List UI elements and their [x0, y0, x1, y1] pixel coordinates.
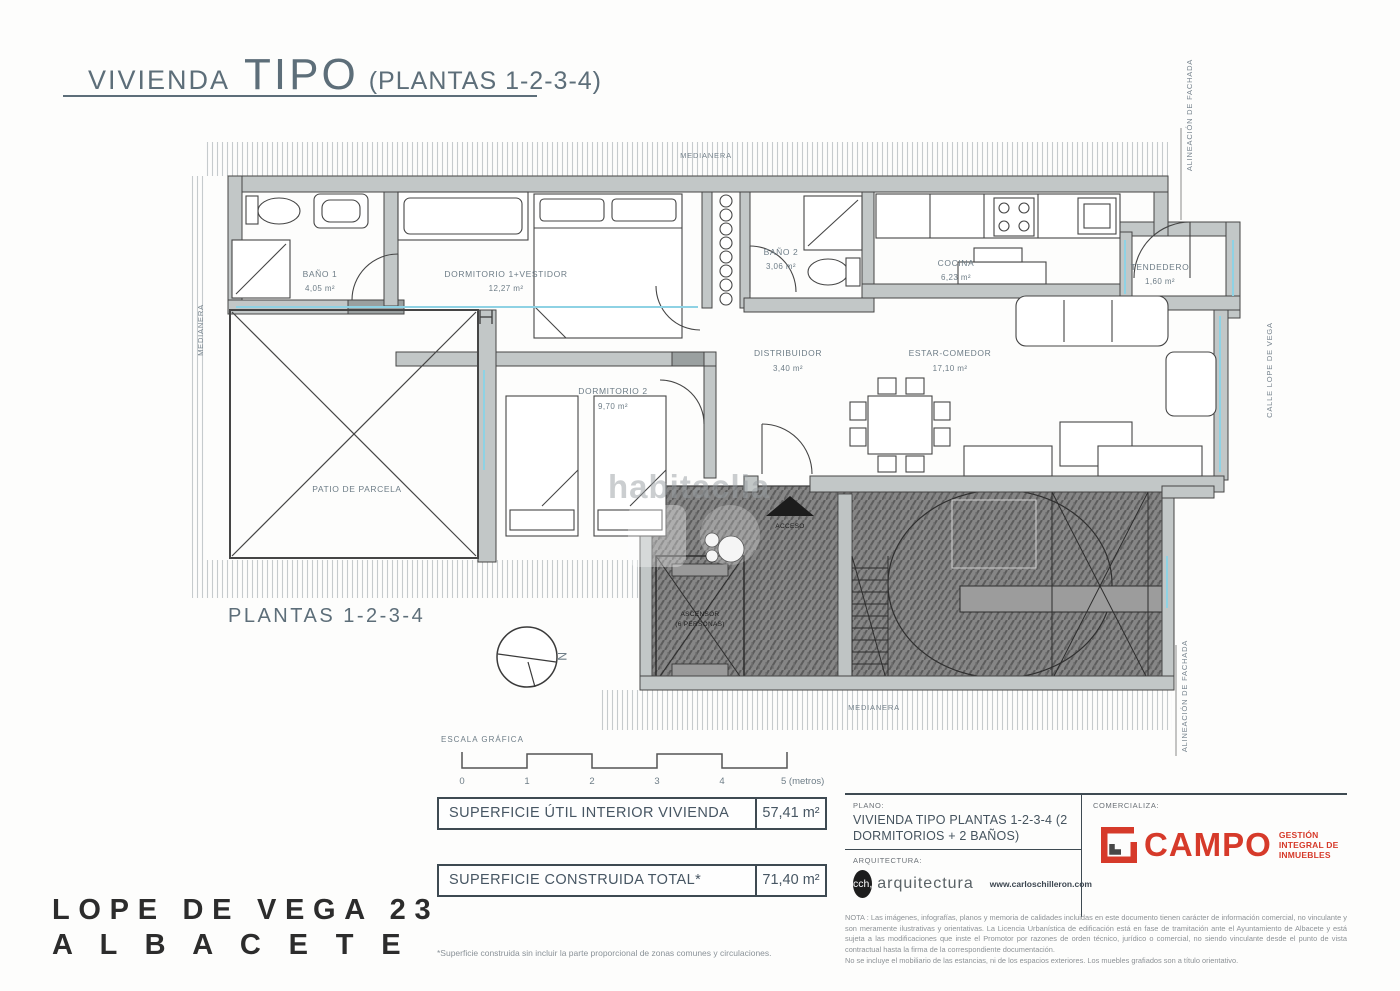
room-area-cocina: 6,23 m²: [941, 273, 971, 282]
scale-tick-3: 3: [654, 776, 659, 787]
arquitectura-label: ARQUITECTURA:: [845, 850, 1081, 865]
medianera-bottom-label: MEDIANERA: [848, 703, 900, 712]
scale-tick-2: 2: [589, 776, 594, 787]
nota-paragraph-1: NOTA : Las imágenes, infografías, planos…: [845, 913, 1347, 956]
calle-lope-de-vega-label: CALLE LOPE DE VEGA: [1265, 322, 1274, 418]
title-block-left: PLANO: VIVIENDA TIPO PLANTAS 1-2-3-4 (2 …: [845, 795, 1081, 911]
campo-tagline-2: INTEGRAL DE: [1279, 840, 1339, 850]
campo-tagline-1: GESTIÓN: [1279, 830, 1339, 840]
arquitectura-row: cch, arquitectura www.carloschilleron.co…: [845, 865, 1081, 898]
surface-construida-table: SUPERFICIE CONSTRUIDA TOTAL* 71,40 m²: [437, 864, 827, 897]
room-label-bano2: BAÑO 2: [764, 247, 799, 257]
comercializa-label: COMERCIALIZA:: [1081, 795, 1347, 810]
acceso-label: ACCESO: [775, 523, 804, 530]
room-label-bano1: BAÑO 1: [303, 269, 338, 279]
plano-section: PLANO: VIVIENDA TIPO PLANTAS 1-2-3-4 (2 …: [845, 795, 1081, 850]
medianera-left-label: MEDIANERA: [196, 304, 205, 356]
svg-text:N: N: [555, 652, 569, 661]
scale-bar-title: ESCALA GRÁFICA: [441, 735, 524, 744]
room-label-distribuidor: DISTRIBUIDOR: [754, 348, 822, 358]
surface-util-value: 57,41 m²: [755, 799, 825, 828]
room-area-bano2: 3,06 m²: [766, 262, 796, 271]
scale-tick-1: 1: [524, 776, 529, 787]
campo-brand-name: CAMPO: [1144, 826, 1272, 864]
project-address: LOPE DE VEGA 23 A L B A C E T E: [52, 894, 439, 962]
address-line2: A L B A C E T E: [52, 929, 439, 962]
campo-logo-icon: [1101, 827, 1137, 863]
patio-outline: [230, 310, 478, 558]
title-block: PLANO: VIVIENDA TIPO PLANTAS 1-2-3-4 (2 …: [845, 793, 1347, 977]
room-label-dormitorio1: DORMITORIO 1+VESTIDOR: [444, 269, 567, 279]
room-label-cocina: COCINA: [938, 258, 975, 268]
nota-paragraph-2: No se incluye el mobiliario de las estan…: [845, 956, 1347, 967]
room-area-dormitorio2: 9,70 m²: [598, 402, 628, 411]
surface-construida-label: SUPERFICIE CONSTRUIDA TOTAL*: [439, 866, 755, 895]
scale-bar: ESCALA GRÁFICA 0 1 2 3 4 5 (metros): [441, 735, 824, 787]
room-area-estar: 17,10 m²: [933, 364, 968, 373]
floor-label: PLANTAS 1-2-3-4: [228, 605, 425, 628]
room-area-dormitorio1: 12,27 m²: [489, 284, 524, 293]
room-label-tendedero: TENDEDERO: [1131, 262, 1190, 272]
arquitectura-website: www.carloschilleron.com: [990, 879, 1092, 889]
watermark-blob: [628, 505, 686, 567]
room-area-bano1: 4,05 m²: [305, 284, 335, 293]
arquitectura-name: arquitectura: [877, 875, 974, 893]
plano-label: PLANO:: [845, 795, 1081, 810]
north-arrow-icon: N: [497, 627, 569, 687]
surface-util-table: SUPERFICIE ÚTIL INTERIOR VIVIENDA 57,41 …: [437, 797, 827, 830]
watermark-text: habitaclia: [608, 468, 770, 506]
campo-tagline: GESTIÓN INTEGRAL DE INMUEBLES: [1279, 830, 1339, 861]
campo-tagline-3: INMUEBLES: [1279, 850, 1339, 860]
plano-value: VIVIENDA TIPO PLANTAS 1-2-3-4 (2 DORMITO…: [845, 810, 1081, 844]
watermark-blob: [700, 505, 760, 565]
nota-section: NOTA : Las imágenes, infografías, planos…: [845, 913, 1347, 967]
alineacion-fachada-bottom-label: ALINEACIÓN DE FACHADA: [1180, 640, 1189, 752]
scale-tick-0: 0: [459, 776, 464, 787]
scale-tick-4: 4: [719, 776, 724, 787]
title-block-right: COMERCIALIZA: CAMPO GESTIÓN INTEGRAL DE …: [1081, 795, 1347, 911]
alineacion-fachada-top-label: ALINEACIÓN DE FACHADA: [1185, 59, 1194, 171]
surface-construida-value: 71,40 m²: [755, 866, 825, 895]
room-label-estar: ESTAR-COMEDOR: [909, 348, 992, 358]
campo-logo: CAMPO GESTIÓN INTEGRAL DE INMUEBLES: [1101, 826, 1347, 864]
room-area-tendedero: 1,60 m²: [1145, 277, 1175, 286]
surface-util-label: SUPERFICIE ÚTIL INTERIOR VIVIENDA: [439, 799, 755, 828]
scale-tick-5: 5 (metros): [781, 776, 824, 787]
room-label-dormitorio2: DORMITORIO 2: [578, 386, 647, 396]
room-area-ascensor: (6 PERSONAS): [675, 621, 724, 628]
medianera-top-label: MEDIANERA: [680, 151, 732, 160]
room-area-distribuidor: 3,40 m²: [773, 364, 803, 373]
surface-footnote: *Superficie construida sin incluir la pa…: [437, 948, 772, 958]
address-line1: LOPE DE VEGA 23: [52, 894, 439, 927]
room-label-patio: PATIO DE PARCELA: [312, 484, 401, 494]
plan-sheet: VIVIENDATIPO(PLANTAS 1-2-3-4): [0, 0, 1400, 991]
cch-logo: cch,: [853, 870, 872, 898]
room-label-ascensor: ASCENSOR: [681, 611, 720, 618]
